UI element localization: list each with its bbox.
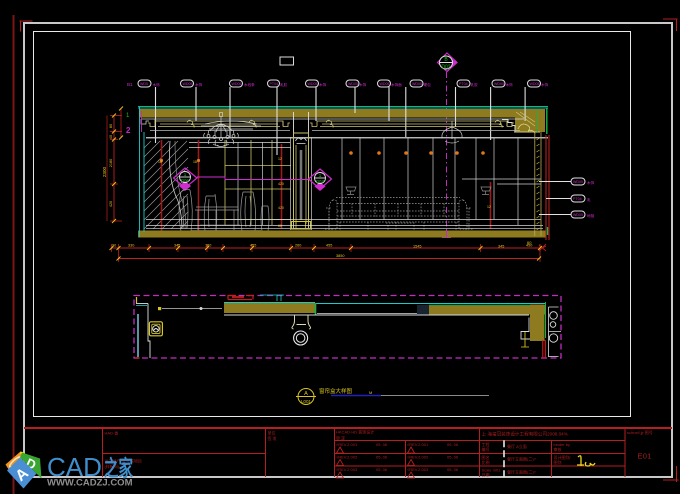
svg-text:420: 420 bbox=[109, 201, 113, 207]
svg-text:乳胶: 乳胶 bbox=[471, 82, 479, 87]
svg-text:WD05: WD05 bbox=[348, 82, 358, 86]
svg-text:木饰: 木饰 bbox=[359, 82, 367, 87]
svg-text:√REV.2.002: √REV.2.002 bbox=[336, 455, 358, 460]
svg-text:餐厅立面图(二)?: 餐厅立面图(二)? bbox=[507, 456, 537, 462]
svg-text:330: 330 bbox=[128, 244, 134, 248]
svg-text:A: A bbox=[304, 391, 308, 397]
svg-text:审核: 审核 bbox=[554, 446, 562, 452]
svg-text:木饰: 木饰 bbox=[541, 82, 549, 87]
svg-text:餐厅立面图(二)?: 餐厅立面图(二)? bbox=[507, 469, 537, 475]
svg-text:WD05: WD05 bbox=[183, 82, 193, 86]
svg-text:345: 345 bbox=[174, 244, 180, 248]
svg-text:12: 12 bbox=[487, 205, 491, 209]
svg-text:B1: B1 bbox=[127, 82, 133, 87]
svg-text:05, 06: 05, 06 bbox=[447, 455, 459, 460]
svg-text:单位: 单位 bbox=[268, 430, 276, 436]
svg-text:HKCAD·HD 装饰设计: HKCAD·HD 装饰设计 bbox=[336, 429, 374, 435]
svg-text:12: 12 bbox=[278, 157, 282, 161]
svg-text:455: 455 bbox=[326, 244, 332, 248]
svg-text:2300: 2300 bbox=[102, 166, 107, 177]
svg-text:WD5: WD5 bbox=[140, 82, 148, 86]
svg-text:比例: 比例 bbox=[482, 459, 490, 465]
svg-text:schnell jjr 图号: schnell jjr 图号 bbox=[627, 429, 653, 435]
svg-text:40: 40 bbox=[109, 135, 113, 139]
svg-text:2180: 2180 bbox=[109, 159, 113, 167]
svg-text:HAD·香: HAD·香 bbox=[105, 430, 119, 436]
svg-text:05, 06: 05, 06 bbox=[447, 467, 459, 472]
svg-text:18: 18 bbox=[193, 160, 197, 164]
svg-text:√REV.2.002: √REV.2.002 bbox=[407, 455, 429, 460]
svg-text:WWW.CADZJ.COM: WWW.CADZJ.COM bbox=[47, 478, 133, 489]
svg-text:木饰: 木饰 bbox=[506, 82, 514, 87]
svg-text:木饰: 木饰 bbox=[587, 180, 595, 185]
svg-text:日期: 日期 bbox=[482, 472, 490, 478]
svg-text:E01: E01 bbox=[638, 452, 652, 461]
svg-text:90: 90 bbox=[112, 244, 116, 248]
svg-text:PT04: PT04 bbox=[270, 82, 279, 86]
svg-text:√REV.2.001: √REV.2.001 bbox=[336, 442, 358, 447]
svg-text:审 定: 审 定 bbox=[336, 435, 345, 441]
svg-text:420: 420 bbox=[278, 182, 284, 186]
svg-text:345: 345 bbox=[498, 245, 504, 249]
svg-text:上 海玺冠装饰设计工程有限公司2008.04%: 上 海玺冠装饰设计工程有限公司2008.04% bbox=[482, 431, 568, 438]
svg-text:乳: 乳 bbox=[587, 197, 591, 202]
svg-text:80: 80 bbox=[109, 124, 113, 128]
svg-text:WD05: WD05 bbox=[573, 180, 583, 184]
svg-text:√REV.2.003: √REV.2.003 bbox=[407, 467, 429, 472]
svg-text:D07: D07 bbox=[316, 179, 324, 184]
svg-text:M: M bbox=[369, 390, 372, 395]
svg-text:D06: D06 bbox=[181, 178, 189, 183]
svg-text:WD05: WD05 bbox=[380, 82, 390, 86]
svg-text:60: 60 bbox=[278, 224, 282, 228]
svg-text:05, 06: 05, 06 bbox=[376, 442, 388, 447]
svg-text:PT04: PT04 bbox=[573, 197, 582, 201]
svg-text:05, 06: 05, 06 bbox=[376, 455, 388, 460]
svg-text:2: 2 bbox=[126, 126, 131, 135]
svg-text:05, 06: 05, 06 bbox=[447, 442, 459, 447]
svg-text:餐厅 A立面: 餐厅 A立面 bbox=[507, 443, 527, 449]
svg-text:地毯: 地毯 bbox=[587, 213, 595, 218]
svg-text:D02: D02 bbox=[441, 65, 450, 71]
svg-text:硬包: 硬包 bbox=[424, 82, 432, 87]
svg-text:WD05: WD05 bbox=[308, 82, 318, 86]
svg-text:√REV.2.003: √REV.2.003 bbox=[336, 467, 358, 472]
svg-text:420: 420 bbox=[278, 206, 284, 210]
svg-text:木饰面: 木饰面 bbox=[391, 82, 402, 87]
svg-text:WD05: WD05 bbox=[232, 82, 242, 86]
svg-text:1545: 1545 bbox=[413, 245, 421, 249]
svg-text:450: 450 bbox=[526, 244, 532, 248]
svg-text:窗帘盒大样图: 窗帘盒大样图 bbox=[319, 387, 353, 395]
svg-text:乳胶: 乳胶 bbox=[280, 82, 288, 87]
svg-text:L001: L001 bbox=[301, 399, 312, 404]
svg-text:图别: 图别 bbox=[554, 459, 562, 465]
svg-text:18: 18 bbox=[158, 160, 162, 164]
svg-text:编号: 编号 bbox=[482, 446, 490, 452]
svg-text:签 发: 签 发 bbox=[268, 435, 277, 441]
svg-text:WD05: WD05 bbox=[530, 82, 540, 86]
svg-text:WD05: WD05 bbox=[494, 82, 504, 86]
svg-text:WD05: WD05 bbox=[573, 213, 583, 217]
svg-text:√REV.2.001: √REV.2.001 bbox=[407, 442, 429, 447]
svg-text:1: 1 bbox=[126, 113, 130, 119]
svg-text:455: 455 bbox=[250, 244, 256, 248]
svg-text:木饰: 木饰 bbox=[319, 82, 327, 87]
svg-text:260: 260 bbox=[295, 244, 301, 248]
svg-text:PT04: PT04 bbox=[459, 82, 468, 86]
svg-text:WD05: WD05 bbox=[412, 82, 422, 86]
svg-text:3850: 3850 bbox=[336, 254, 344, 258]
svg-text:木饰: 木饰 bbox=[195, 82, 203, 87]
svg-text:木线条: 木线条 bbox=[244, 82, 255, 87]
svg-text:05, 06: 05, 06 bbox=[376, 467, 388, 472]
svg-text:木饰: 木饰 bbox=[153, 82, 161, 87]
svg-text:180: 180 bbox=[205, 244, 211, 248]
